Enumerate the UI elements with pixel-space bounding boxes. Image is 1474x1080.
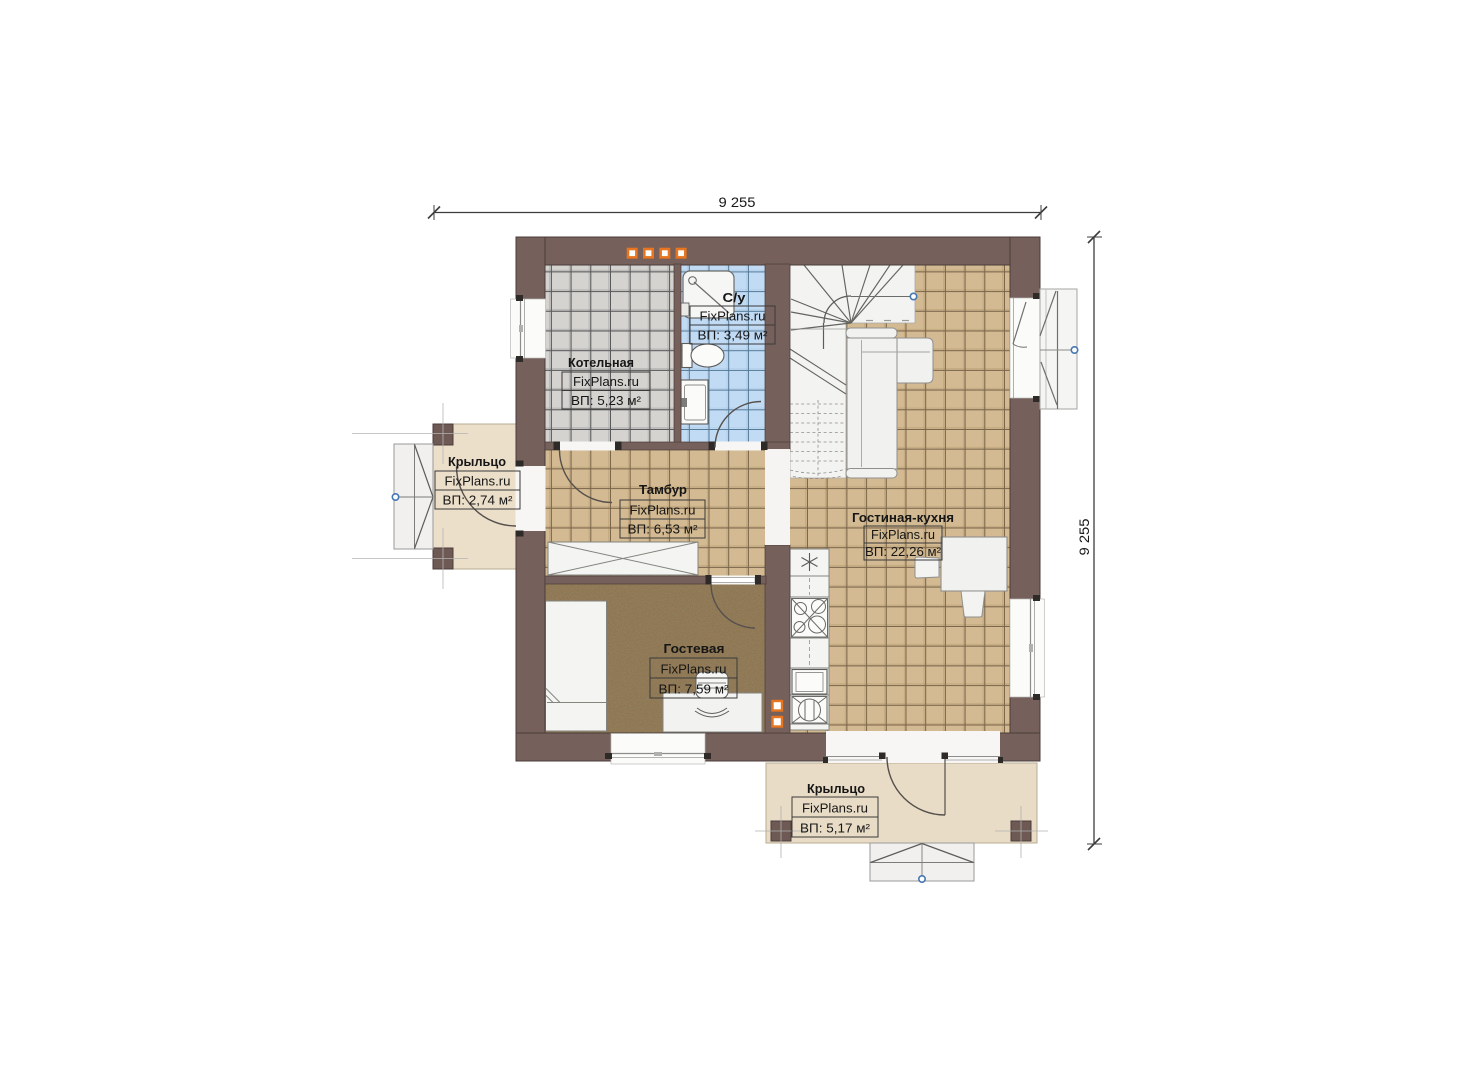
svg-text:Крыльцо: Крыльцо (807, 781, 865, 796)
svg-text:Гостиная-кухня: Гостиная-кухня (852, 510, 954, 525)
svg-text:ВП: 5,17 м²: ВП: 5,17 м² (800, 821, 871, 836)
svg-text:FixPlans.ru: FixPlans.ru (700, 309, 766, 324)
svg-text:9 255: 9 255 (1077, 519, 1092, 556)
svg-text:FixPlans.ru: FixPlans.ru (802, 801, 868, 816)
svg-text:ВП: 5,23 м²: ВП: 5,23 м² (571, 393, 642, 408)
svg-text:Крыльцо: Крыльцо (448, 454, 506, 469)
svg-text:FixPlans.ru: FixPlans.ru (573, 374, 639, 389)
svg-text:Котельная: Котельная (568, 355, 634, 370)
svg-text:FixPlans.ru: FixPlans.ru (445, 474, 511, 489)
svg-text:9 255: 9 255 (719, 195, 756, 210)
svg-text:ВП: 2,74 м²: ВП: 2,74 м² (443, 493, 514, 508)
svg-text:С/у: С/у (723, 290, 747, 305)
svg-text:ВП: 3,49 м²: ВП: 3,49 м² (698, 328, 769, 343)
svg-text:Тамбур: Тамбур (639, 482, 687, 497)
svg-text:FixPlans.ru: FixPlans.ru (661, 662, 727, 677)
svg-text:ВП: 6,53 м²: ВП: 6,53 м² (628, 522, 699, 537)
svg-text:ВП: 7,59 м²: ВП: 7,59 м² (659, 682, 730, 697)
svg-text:Гостевая: Гостевая (664, 641, 725, 656)
svg-text:ВП: 22,26 м²: ВП: 22,26 м² (865, 545, 941, 559)
svg-text:FixPlans.ru: FixPlans.ru (630, 503, 696, 518)
svg-text:FixPlans.ru: FixPlans.ru (871, 528, 935, 542)
